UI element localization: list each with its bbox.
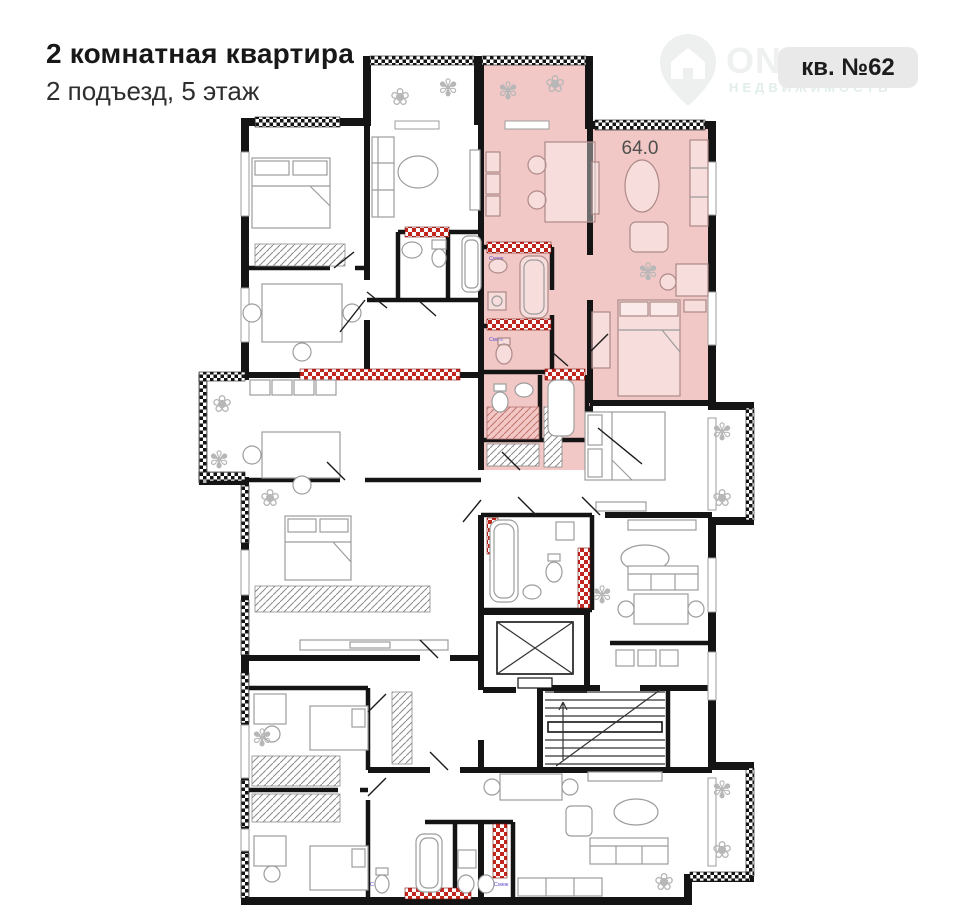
apartment-number-badge: кв. №62 xyxy=(778,47,918,88)
svg-text:❀: ❀ xyxy=(545,70,565,98)
floor-plan: Смеж Смеж Смеж Смеж Смеж xyxy=(0,0,960,910)
svg-text:❀: ❀ xyxy=(712,484,732,512)
svg-text:✾: ✾ xyxy=(712,776,732,804)
svg-text:❀: ❀ xyxy=(654,868,674,896)
elevator xyxy=(497,622,573,688)
svg-text:Смеж: Смеж xyxy=(494,882,509,888)
svg-text:✾: ✾ xyxy=(438,74,458,102)
svg-text:✾: ✾ xyxy=(592,581,612,609)
floorplan-page: ONREALT НЕДВИЖИМОСТЬ 2 комнатная квартир… xyxy=(0,0,960,910)
svg-text:✾: ✾ xyxy=(252,724,272,752)
svg-text:❀: ❀ xyxy=(390,83,410,111)
svg-text:✾: ✾ xyxy=(498,77,518,105)
svg-text:✾: ✾ xyxy=(209,446,229,474)
svg-text:✾: ✾ xyxy=(712,418,732,446)
svg-text:❀: ❀ xyxy=(212,390,232,418)
svg-text:✾: ✾ xyxy=(638,258,658,286)
staircase xyxy=(545,690,665,766)
svg-text:❀: ❀ xyxy=(712,836,732,864)
apartment-area-label: 64.0 xyxy=(622,138,659,159)
svg-text:❀: ❀ xyxy=(260,484,280,512)
